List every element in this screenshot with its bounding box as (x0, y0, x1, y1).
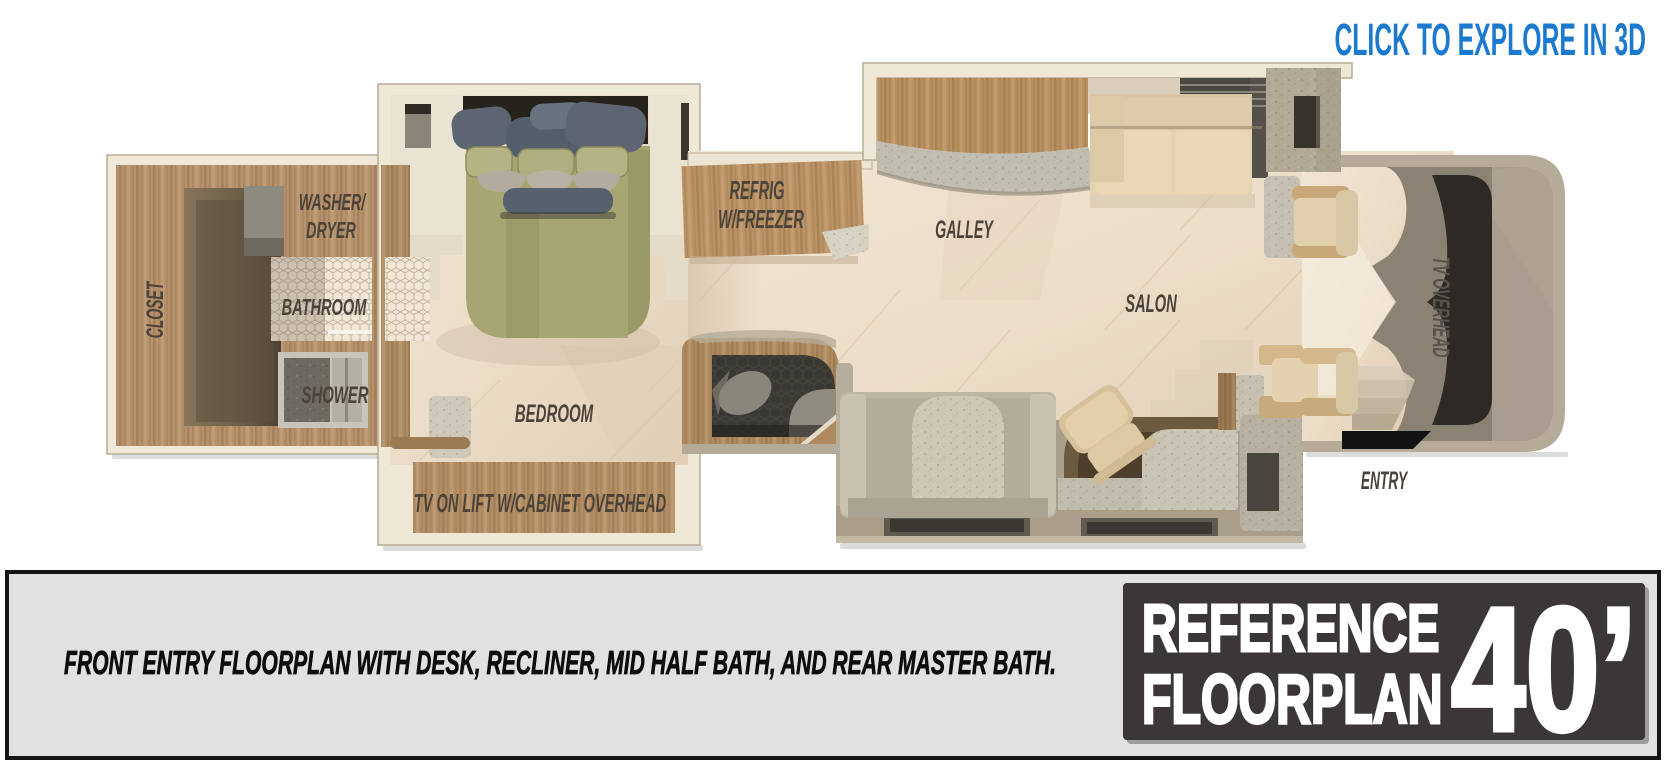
svg-text:CLICK TO EXPLORE IN 3D: CLICK TO EXPLORE IN 3D (1334, 14, 1646, 65)
svg-text:W/FREEZER: W/FREEZER (718, 206, 804, 234)
svg-text:SHOWER: SHOWER (302, 383, 369, 409)
svg-text:REFRIG: REFRIG (730, 177, 785, 205)
svg-text:DRYER: DRYER (306, 219, 356, 244)
svg-text:40’: 40’ (1451, 571, 1637, 768)
svg-text:BATHROOM: BATHROOM (282, 295, 367, 321)
svg-text:CLOSET: CLOSET (142, 280, 169, 338)
svg-text:FLOORPLAN: FLOORPLAN (1142, 660, 1442, 738)
svg-text:FRONT ENTRY FLOORPLAN WITH DES: FRONT ENTRY FLOORPLAN WITH DESK, RECLINE… (64, 644, 1056, 681)
svg-text:SALON: SALON (1125, 290, 1177, 318)
svg-text:TV OVERHEAD: TV OVERHEAD (1427, 257, 1454, 358)
svg-text:WASHER/: WASHER/ (299, 191, 367, 216)
svg-text:GALLEY: GALLEY (935, 217, 994, 244)
svg-text:TV ON LIFT W/CABINET OVERHEAD: TV ON LIFT W/CABINET OVERHEAD (414, 490, 666, 518)
svg-text:ENTRY: ENTRY (1361, 468, 1408, 495)
svg-text:REFERENCE: REFERENCE (1142, 591, 1439, 666)
svg-text:BEDROOM: BEDROOM (515, 400, 594, 428)
